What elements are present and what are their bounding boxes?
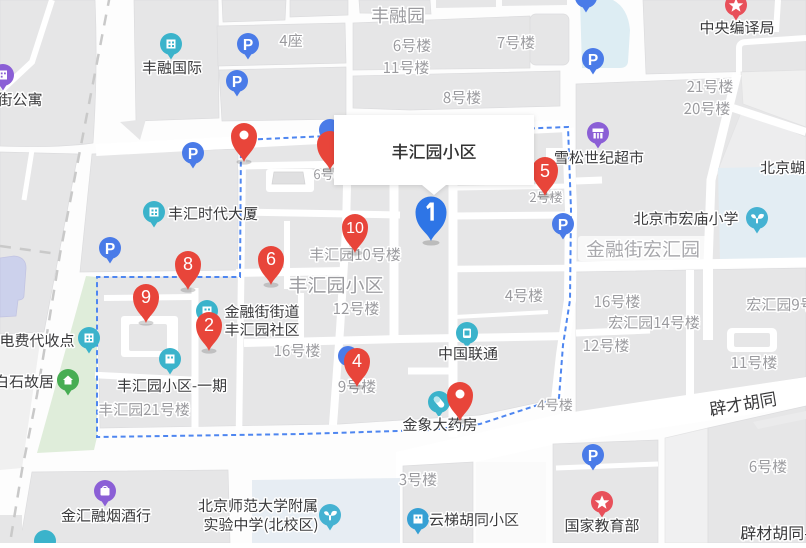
svg-text:5: 5 (540, 161, 550, 181)
svg-text:9: 9 (141, 287, 151, 307)
svg-text:4: 4 (352, 351, 362, 371)
svg-text:6: 6 (266, 249, 276, 269)
svg-text:8: 8 (183, 254, 193, 274)
svg-text:P: P (558, 217, 568, 234)
svg-text:2: 2 (204, 315, 214, 335)
svg-text:P: P (588, 52, 598, 69)
svg-text:P: P (588, 448, 598, 465)
svg-text:P: P (232, 74, 242, 91)
svg-text:10: 10 (346, 220, 364, 237)
svg-text:P: P (188, 146, 198, 163)
svg-text:P: P (243, 37, 253, 54)
svg-text:P: P (105, 241, 115, 258)
